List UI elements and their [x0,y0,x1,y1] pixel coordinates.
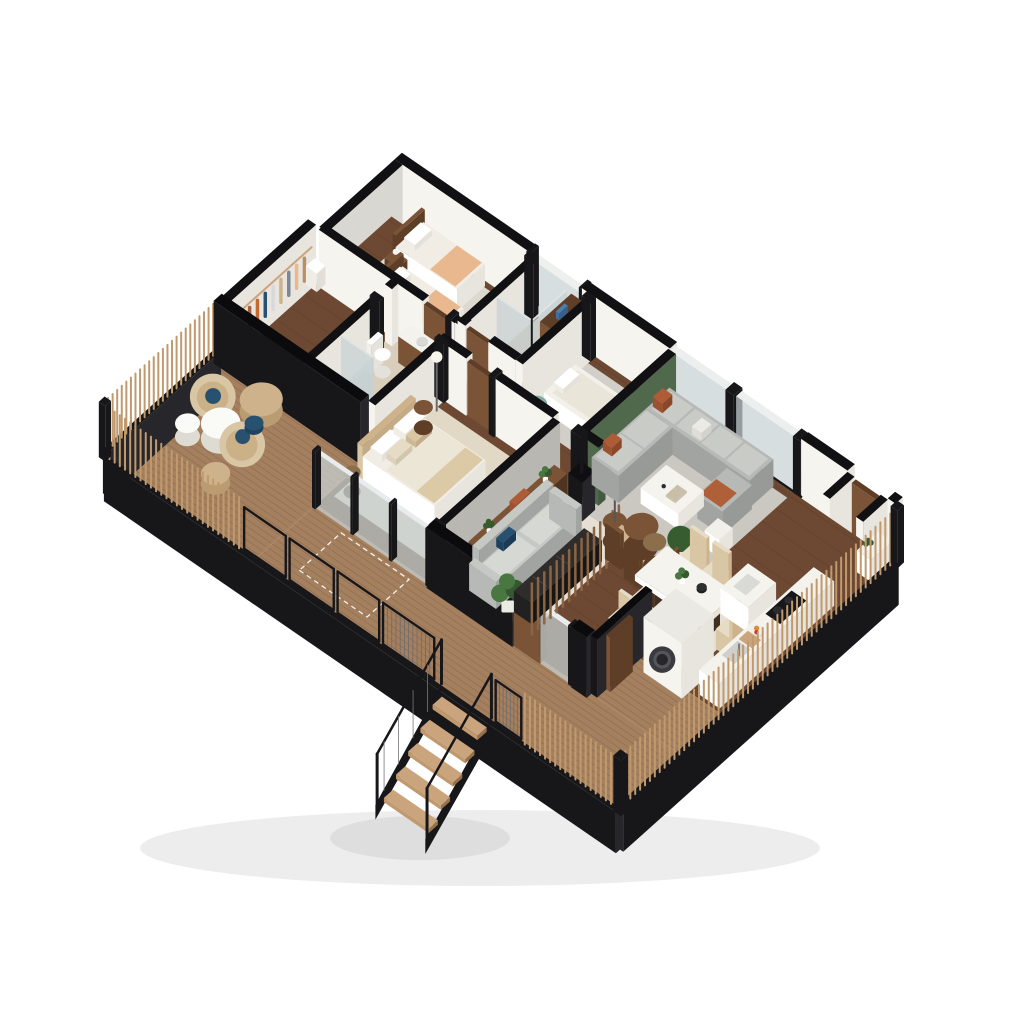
wall-end-post [582,296,591,362]
railing-corner-post [891,506,898,568]
partition-wood-door [606,635,610,692]
plan-svg [0,0,1024,1024]
slider-mullion [391,499,397,561]
tall-plant [501,601,514,613]
wood-chair-back [621,531,624,570]
floor-plan-canvas [0,0,1024,1024]
wall-end-post [444,340,449,403]
black-exterior-wall-lounge [571,627,586,698]
slider-mullion [350,477,353,536]
slider-mullion [312,450,315,509]
slider-mullion [353,473,359,535]
railing-corner-post [613,756,621,817]
console-plant [542,466,548,472]
table-centerpiece-plant [679,579,684,584]
wall-end-post [591,297,596,362]
black-partition-wall [591,635,597,698]
floor-lamp-globe [431,351,442,362]
railing-corner-post [99,402,105,462]
railing-corner-post [105,401,111,462]
door-jamb-post [489,375,494,438]
railing-corner-post [898,505,904,568]
railing-corner-post [621,755,628,817]
slider-mullion [315,447,321,509]
table-centerpiece-plant [678,567,685,574]
console-plant [486,519,492,525]
wall-closet-east [385,284,392,346]
coffee-table-decor [662,484,666,488]
wall-closet-east [392,283,398,346]
washer-door-glass [656,654,667,665]
slider-mullion [389,503,392,562]
wall-end-post [524,255,533,322]
tall-plant [499,573,515,589]
glazing-mullion [793,436,801,499]
wall-end-post [533,257,538,322]
navy-cushion [205,388,221,404]
